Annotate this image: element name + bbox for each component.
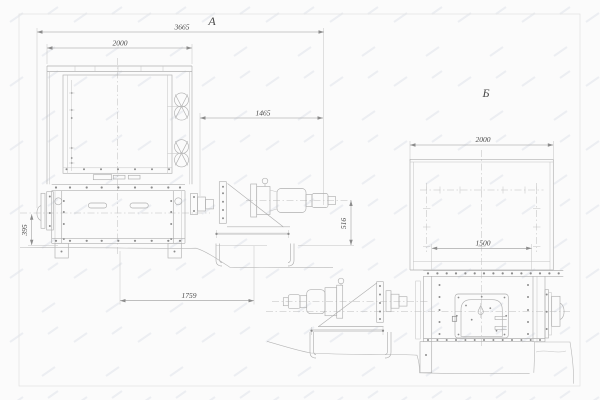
view-a-label: А: [207, 14, 216, 28]
dim-1465-text: 1465: [256, 109, 271, 118]
dim-516-text: 516: [339, 218, 348, 230]
dim-1500-text: 1500: [476, 238, 491, 247]
dim-3665-text: 3665: [174, 23, 190, 32]
dim-395-text: 395: [20, 224, 29, 237]
watermark-pattern: [0, 0, 600, 400]
view-b-label: Б: [481, 86, 489, 100]
drawing-sheet: А 3665 2000: [0, 0, 600, 400]
dim-2000a-text: 2000: [113, 39, 128, 48]
dim-1759-text: 1759: [182, 291, 197, 300]
dim-2000b-text: 2000: [476, 135, 491, 144]
trough-b-top-bolts: [427, 272, 560, 274]
technical-drawing-canvas: А 3665 2000: [0, 0, 600, 400]
